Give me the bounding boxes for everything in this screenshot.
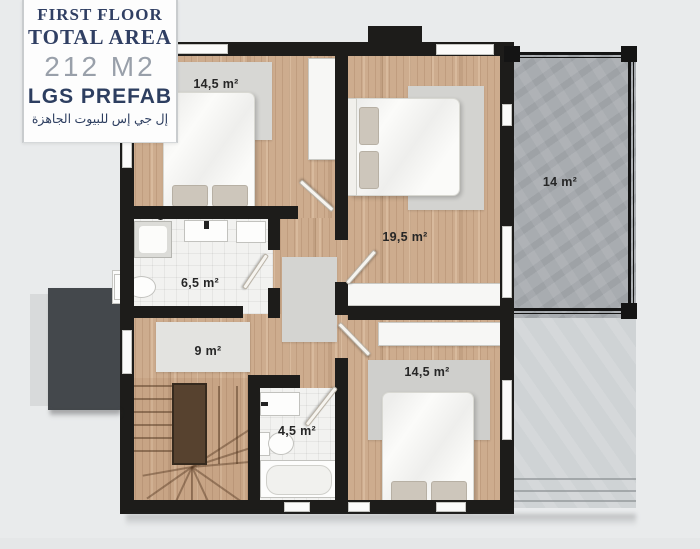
wall-divider-mid (335, 282, 348, 315)
room-label-bedroom-middle: 19,5 m² (365, 230, 445, 244)
room-label-bathroom-main: 6,5 m² (160, 276, 240, 290)
wall-bathroom-small-west (248, 375, 260, 502)
room-label-bedroom-bottom: 14,5 m² (387, 365, 467, 379)
balcony-rail-top-inner (516, 57, 628, 58)
stair-tread (133, 450, 172, 452)
bathtub-basin (266, 465, 332, 495)
terrace-step-line (514, 478, 636, 480)
stair-tread (133, 437, 172, 439)
bedroom-middle-bed (347, 98, 460, 196)
bottom-edge-strip (0, 538, 700, 549)
bedroom-bottom-bed (382, 392, 474, 510)
room-label-bathroom-small: 4,5 m² (257, 424, 337, 438)
floor-plan-image: 14,5 m² 19,5 m² 14 m² 6,5 m² 9 m² 4,5 m²… (0, 0, 700, 549)
terrace-step-line (514, 490, 636, 492)
stair-winder-tread (191, 467, 216, 502)
pillow (172, 185, 208, 207)
canopy-drop-shadow (50, 410, 120, 416)
brand-name-arabic: إل جي إس للبيوت الجاهزة (32, 111, 168, 126)
shower (134, 221, 172, 258)
stair-tread (133, 398, 172, 400)
window-top-bedroom-middle (436, 44, 494, 55)
sink-faucet-icon (261, 402, 268, 406)
corridor-rug (282, 257, 337, 342)
balcony-rail-bottom-inner (514, 313, 634, 314)
stair-winder-tread (191, 467, 193, 502)
total-area-value: 212 M2 (44, 51, 155, 83)
balcony-rail-right (628, 52, 631, 312)
balcony-rail-right-inner (633, 52, 634, 312)
window-left-hallway (122, 330, 132, 374)
headboard (347, 98, 357, 196)
balcony-post (621, 46, 637, 62)
washer-unit (236, 221, 266, 243)
bedroom-middle-sideboard (347, 283, 504, 306)
balcony-sliding-door (502, 226, 512, 298)
terrace-step-line (514, 500, 636, 502)
pillow (359, 107, 379, 145)
stair-tread (133, 424, 172, 426)
window-bottom-bedroom-b (436, 502, 466, 512)
wall-bedrooms-middle-south (348, 306, 506, 320)
wall-bathroom-main-east-a (268, 218, 280, 250)
balcony-post (621, 303, 637, 319)
bedroom-bottom-dresser (378, 322, 504, 346)
shower-tray (139, 226, 167, 253)
entrance-canopy (48, 288, 120, 410)
stair-tread (133, 385, 172, 387)
balcony-rail-top (516, 52, 628, 55)
brand-name: LGS PREFAB (28, 85, 172, 109)
pillow (359, 151, 379, 189)
staircase (133, 378, 248, 502)
window-bottom-bedroom-a (348, 502, 370, 512)
window-bottom-bathroom (284, 502, 310, 512)
wall-bathroom-main-east-b (268, 288, 280, 318)
stair-tread (218, 386, 220, 464)
wall-bathroom-main-south (120, 306, 243, 318)
stair-tread (133, 411, 172, 413)
balcony-post (504, 46, 520, 62)
chimney (368, 26, 422, 46)
window-right-bedroom-bottom (502, 380, 512, 440)
building-shadow (126, 514, 636, 526)
window-right-bedroom-middle (502, 104, 512, 126)
sink-faucet-icon (204, 221, 209, 229)
room-label-hallway: 9 m² (168, 344, 248, 358)
bedroom-top-left-wardrobe (308, 58, 338, 160)
balcony-rail-bottom (514, 308, 634, 311)
total-area-title: TOTAL AREA (28, 25, 172, 50)
stair-center-wall (172, 383, 207, 465)
bathtub (260, 460, 336, 498)
room-label-bedroom-top-left: 14,5 m² (176, 77, 256, 91)
floor-title: FIRST FLOOR (37, 5, 162, 25)
wall-divider-north (335, 56, 348, 240)
info-panel: FIRST FLOOR TOTAL AREA 212 M2 LGS PREFAB… (22, 0, 178, 143)
canopy-shadow (30, 294, 48, 406)
pillow (212, 185, 248, 207)
room-label-balcony: 14 m² (520, 175, 600, 189)
